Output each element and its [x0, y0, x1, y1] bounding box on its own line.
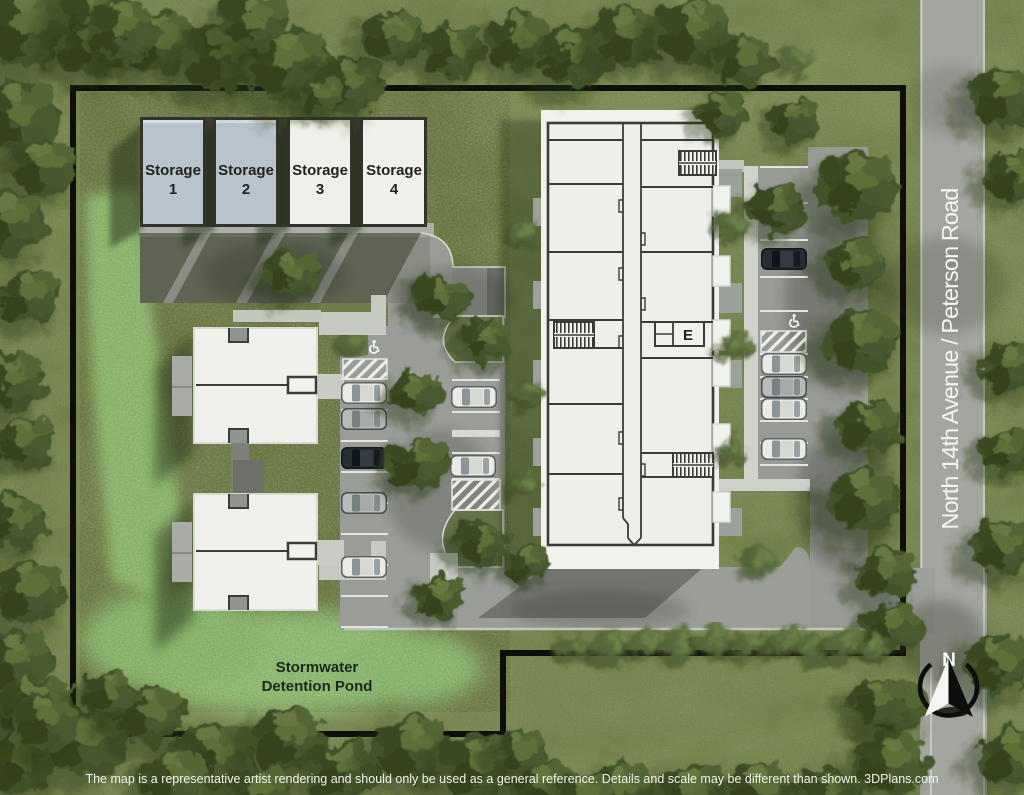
- svg-text:Detention Pond: Detention Pond: [262, 678, 373, 695]
- svg-text:4: 4: [390, 181, 399, 198]
- svg-text:North 14th Avenue / Peterson R: North 14th Avenue / Peterson Road: [937, 189, 963, 530]
- svg-text:1: 1: [169, 181, 177, 198]
- svg-text:E: E: [683, 327, 693, 344]
- svg-text:Stormwater: Stormwater: [276, 659, 359, 676]
- svg-text:Storage: Storage: [218, 162, 274, 179]
- svg-text:Storage: Storage: [366, 162, 422, 179]
- svg-text:Storage: Storage: [292, 162, 348, 179]
- svg-text:The map is a representative ar: The map is a representative artist rende…: [85, 772, 938, 786]
- svg-text:2: 2: [242, 181, 250, 198]
- svg-text:3: 3: [316, 181, 324, 198]
- svg-text:Storage: Storage: [145, 162, 201, 179]
